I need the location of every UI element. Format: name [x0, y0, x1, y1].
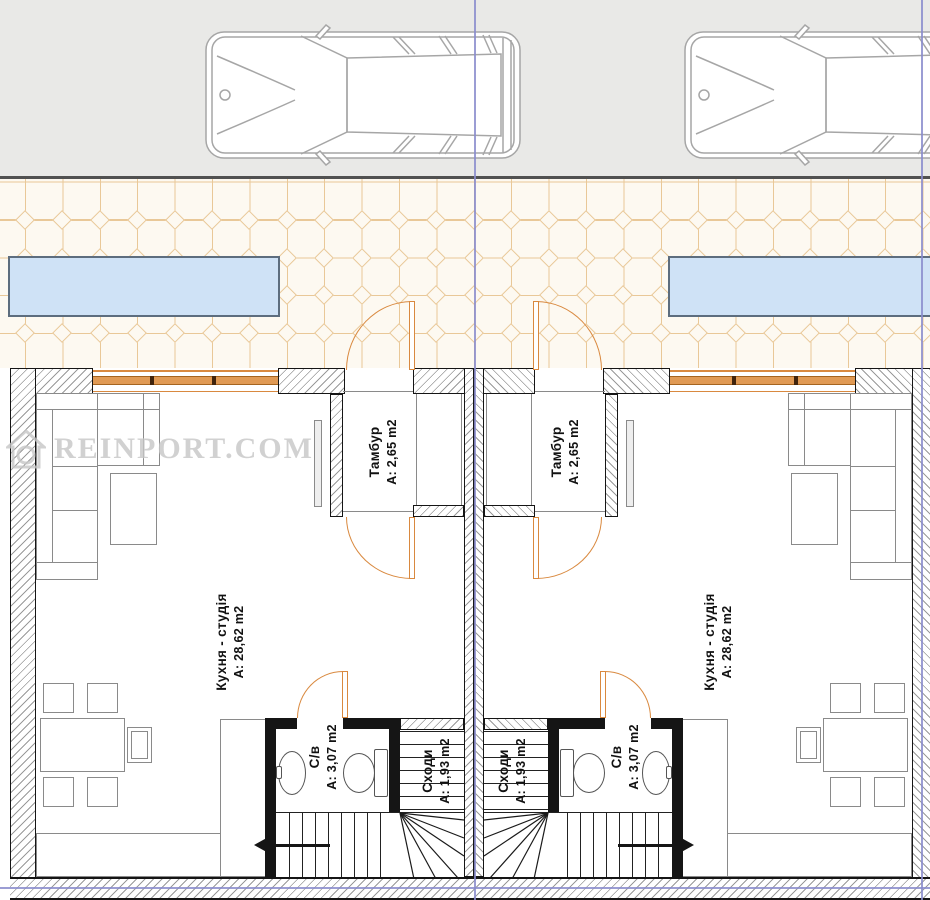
- sofa-cushion-divider: [52, 466, 98, 467]
- sofa-cushion-divider: [52, 510, 98, 511]
- bathroom-door-leaf: [342, 671, 348, 718]
- stair-tread: [580, 813, 581, 877]
- entry-threshold: [535, 391, 605, 392]
- dining-table: [40, 718, 125, 772]
- room-area: A: 2,65 m2: [384, 419, 400, 485]
- stair-tread: [400, 731, 464, 732]
- room-name: Сходи: [495, 738, 513, 804]
- bathroom-wall-right: [389, 718, 400, 813]
- entry-threshold: [343, 391, 413, 392]
- stair-shaft-strip: [416, 394, 462, 505]
- entry-door-arc: [346, 301, 412, 370]
- sofa-armrest-line: [143, 393, 144, 466]
- tv-panel: [314, 420, 322, 507]
- window-mullion: [794, 376, 798, 385]
- lot-boundary-line: [474, 0, 476, 900]
- vestibule-label: Тамбур A: 2,65 m2: [548, 419, 582, 485]
- room-name: Кухня - студія: [213, 593, 231, 690]
- toilet-bowl-icon: [573, 753, 605, 793]
- stair-winder-fan: [398, 810, 466, 880]
- stair-tread: [380, 813, 381, 877]
- lot-boundary-line: [0, 887, 930, 889]
- window-band: [670, 370, 855, 392]
- bathroom-label: С/в A: 3,07 m2: [306, 724, 340, 790]
- sofa-left-arm: [850, 393, 912, 580]
- dining-chair: [43, 777, 74, 807]
- bathroom-wall-right: [548, 718, 559, 813]
- stair-tread: [354, 813, 355, 877]
- stair-tread: [341, 813, 342, 877]
- stair-tread: [606, 813, 607, 877]
- vestibule-label: Тамбур A: 2,65 m2: [366, 419, 400, 485]
- vestibule-wall-bottom: [413, 505, 464, 517]
- coffee-table: [791, 473, 838, 545]
- bathroom-label: С/в A: 3,07 m2: [608, 724, 642, 790]
- vestibule-threshold: [535, 511, 605, 512]
- window-sill-line: [670, 370, 855, 372]
- toilet-bowl-icon: [343, 753, 375, 793]
- kitchen-studio-label: Кухня - студія A: 28,62 m2: [213, 593, 247, 690]
- sofa-left-arm: [36, 393, 98, 580]
- dining-chair: [874, 683, 905, 713]
- stair-tread: [593, 813, 594, 877]
- vestibule-door-leaf: [533, 517, 539, 579]
- room-area: A: 3,07 m2: [626, 724, 642, 790]
- lot-boundary-line: [921, 0, 923, 900]
- stair-direction-arrow-icon: [676, 835, 694, 855]
- dining-chair: [874, 777, 905, 807]
- sofa-cushion-divider: [850, 409, 851, 466]
- window-band: [93, 370, 278, 392]
- wall-party: [464, 368, 474, 877]
- window-sill-line: [93, 370, 278, 372]
- wall-top-pier: [278, 368, 345, 394]
- stair-shaft-strip: [486, 394, 532, 505]
- chair-seat-line: [800, 731, 817, 759]
- room-area: A: 28,62 m2: [231, 593, 247, 690]
- unit-left: Тамбур A: 2,65 m2 Кухня - студія A: 28,6…: [0, 0, 474, 900]
- bathroom-door-arc: [605, 671, 651, 718]
- dining-end-chair: [796, 727, 821, 763]
- sink-icon: [278, 751, 306, 795]
- stair-direction-shaft: [618, 844, 676, 847]
- stair-direction-shaft: [272, 844, 330, 847]
- stairs-label: Сходи A: 1,93 m2: [419, 738, 453, 804]
- stair-tread: [484, 731, 548, 732]
- sofa-cushion-divider: [97, 409, 98, 466]
- stair-tread: [367, 813, 368, 877]
- entry-door-leaf: [533, 301, 539, 370]
- dining-chair: [43, 683, 74, 713]
- bathroom-wall-left: [672, 718, 683, 880]
- dining-chair: [830, 683, 861, 713]
- sofa-back-line: [36, 409, 160, 410]
- toilet-tank-icon: [560, 749, 574, 797]
- bathroom-wall-left: [265, 718, 276, 880]
- sofa-armrest-line: [36, 562, 98, 563]
- entry-door-leaf: [409, 301, 415, 370]
- room-area: A: 2,65 m2: [566, 419, 582, 485]
- sofa-armrest-line: [804, 393, 805, 466]
- bathroom-wall-top: [651, 718, 683, 729]
- bathroom-wall-top: [265, 718, 297, 729]
- stair-direction-arrow-icon: [254, 835, 272, 855]
- vestibule-door-arc: [346, 517, 412, 579]
- window-glass-band: [670, 376, 855, 385]
- kitchen-counter-bottom: [36, 833, 221, 877]
- sink-tap-icon: [666, 766, 672, 779]
- sink-tap-icon: [276, 766, 282, 779]
- window-mullion: [212, 376, 216, 385]
- toilet-tank-icon: [374, 749, 388, 797]
- vestibule-wall-left: [605, 394, 618, 517]
- sofa-back-line: [52, 409, 53, 563]
- window-glass-band: [93, 376, 278, 385]
- room-area: A: 3,07 m2: [324, 724, 340, 790]
- dining-table: [823, 718, 908, 772]
- window-sill-line: [93, 391, 278, 393]
- window-mullion: [732, 376, 736, 385]
- chair-seat-line: [131, 731, 148, 759]
- unit-right: Тамбур A: 2,65 m2 Кухня - студія A: 28,6…: [474, 0, 930, 900]
- stair-tread: [567, 813, 568, 877]
- room-name: Кухня - студія: [701, 593, 719, 690]
- kitchen-studio-label: Кухня - студія A: 28,62 m2: [701, 593, 735, 690]
- room-name: С/в: [306, 724, 324, 790]
- dining-chair: [87, 777, 118, 807]
- sofa-cushion-divider: [850, 466, 896, 467]
- sofa-armrest-line: [850, 562, 912, 563]
- bathroom-door-leaf: [600, 671, 606, 718]
- entrance-canopy: [668, 256, 930, 317]
- window-sill-line: [670, 391, 855, 393]
- stairs-label: Сходи A: 1,93 m2: [495, 738, 529, 804]
- window-mullion: [150, 376, 154, 385]
- floor-plan: Тамбур A: 2,65 m2 Кухня - студія A: 28,6…: [0, 0, 930, 900]
- room-area: A: 28,62 m2: [719, 593, 735, 690]
- bathroom-door-arc: [297, 671, 343, 718]
- dining-chair: [830, 777, 861, 807]
- stair-winder-fan: [482, 810, 550, 880]
- sofa-cushion-divider: [850, 510, 896, 511]
- room-name: Тамбур: [548, 419, 566, 485]
- kitchen-counter-bottom: [727, 833, 912, 877]
- entry-door-arc: [536, 301, 602, 370]
- room-area: A: 1,93 m2: [513, 738, 529, 804]
- dining-chair: [87, 683, 118, 713]
- room-name: С/в: [608, 724, 626, 790]
- vestibule-door-leaf: [409, 517, 415, 579]
- wall-top-pier: [603, 368, 670, 394]
- vestibule-wall-left: [330, 394, 343, 517]
- coffee-table: [110, 473, 157, 545]
- room-name: Тамбур: [366, 419, 384, 485]
- sofa-back-line: [895, 409, 896, 563]
- dining-end-chair: [127, 727, 152, 763]
- wall-left-exterior: [10, 368, 36, 898]
- vestibule-threshold: [343, 511, 413, 512]
- room-area: A: 1,93 m2: [437, 738, 453, 804]
- entrance-canopy: [8, 256, 280, 317]
- vestibule-wall-bottom: [484, 505, 535, 517]
- vestibule-door-arc: [536, 517, 602, 579]
- tv-panel: [626, 420, 634, 507]
- room-name: Сходи: [419, 738, 437, 804]
